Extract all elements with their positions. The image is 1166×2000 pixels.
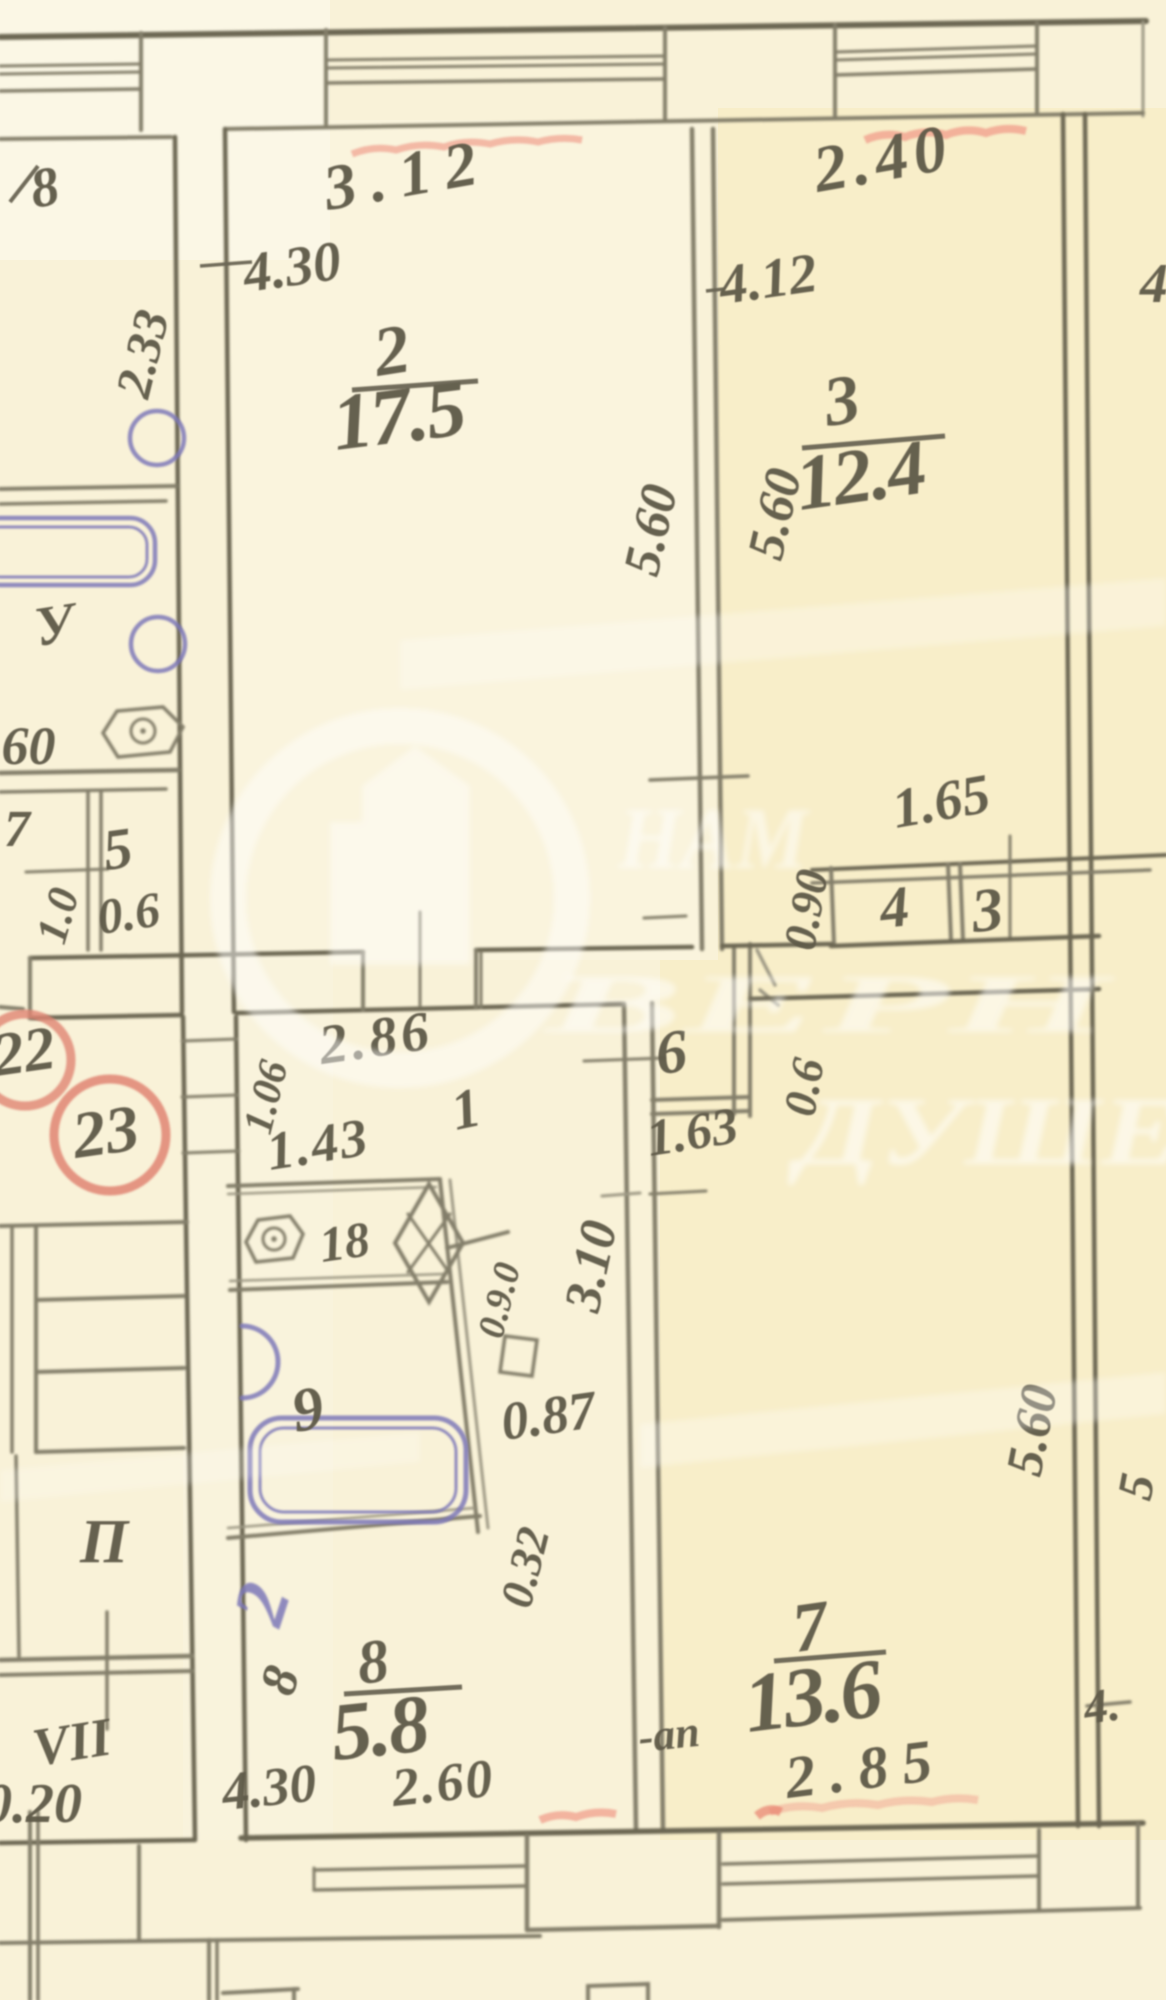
svg-text:.60: .60: [0, 716, 56, 776]
svg-text:2.60: 2.60: [388, 1748, 497, 1818]
svg-text:4.: 4.: [1079, 1677, 1123, 1735]
svg-text:VII: VII: [28, 1706, 116, 1778]
svg-text:НАМ: НАМ: [617, 791, 810, 888]
svg-text:4.30: 4.30: [218, 1752, 319, 1822]
svg-text:18: 18: [316, 1210, 373, 1272]
svg-text:22: 22: [0, 1014, 59, 1090]
svg-text:7: 7: [4, 801, 32, 858]
svg-text:23: 23: [67, 1091, 144, 1173]
svg-text:12.4: 12.4: [790, 423, 929, 527]
svg-text:17.5: 17.5: [327, 364, 469, 467]
svg-text:4.: 4.: [1139, 253, 1166, 315]
svg-text:ВЕРН: ВЕРН: [543, 958, 1117, 1051]
svg-text:ДУШЕ: ДУШЕ: [787, 1078, 1166, 1186]
svg-text:0.6: 0.6: [94, 881, 164, 945]
svg-text:0.20: 0.20: [0, 1773, 82, 1835]
svg-text:П: П: [79, 1508, 130, 1576]
svg-text:-an: -an: [636, 1707, 702, 1762]
